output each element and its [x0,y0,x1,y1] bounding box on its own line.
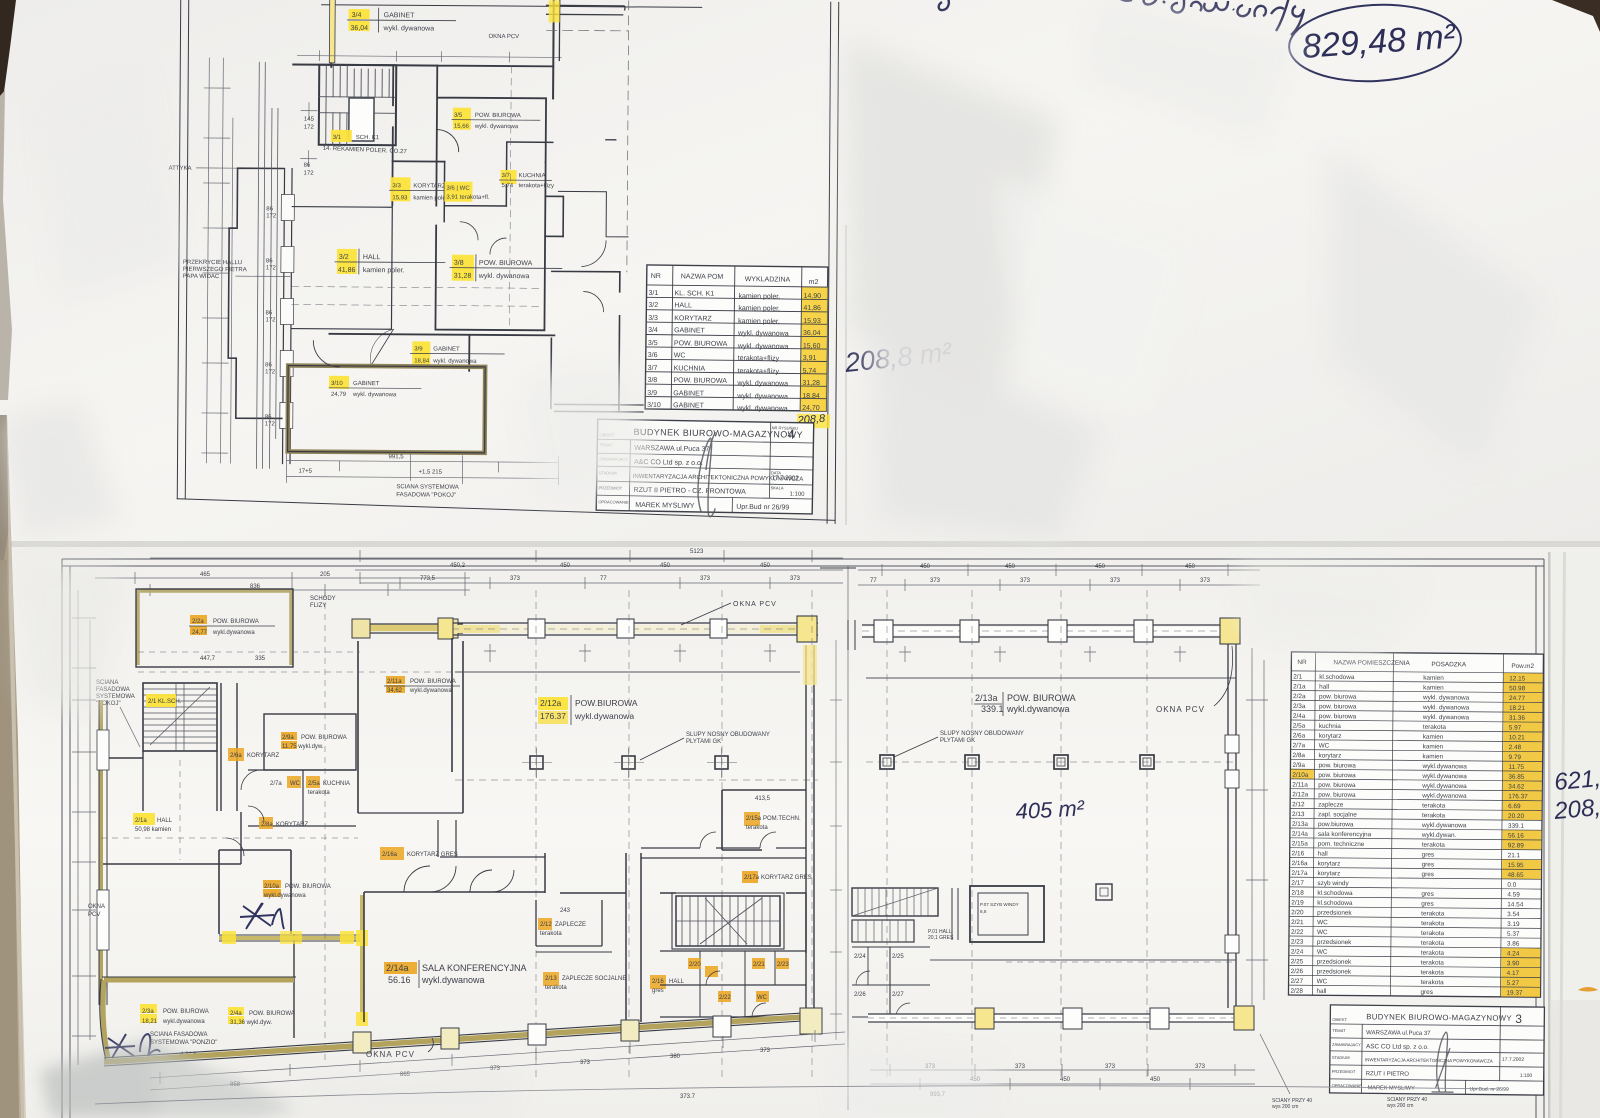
svg-text:POM.TECHN.: POM.TECHN. [763,816,801,822]
svg-text:405 m²: 405 m² [1015,795,1085,824]
svg-text:pow.biurowa: pow.biurowa [1318,821,1354,828]
svg-text:kamien poler.: kamien poler. [738,293,780,301]
svg-text:HALL: HALL [669,979,685,985]
svg-text:2/27: 2/27 [892,992,904,998]
svg-text:POW. BIUROWA: POW. BIUROWA [674,340,728,348]
svg-text:KORYTARZ: KORYTARZ [413,183,445,189]
svg-text:OKNA: OKNA [88,904,105,910]
svg-text:373: 373 [1200,578,1211,584]
svg-text:WC: WC [757,995,768,1001]
svg-text:3,91: 3,91 [803,355,817,362]
svg-text:3/5: 3/5 [648,340,658,347]
svg-text:2/12a: 2/12a [540,698,562,708]
svg-text:3/7: 3/7 [648,365,658,372]
svg-text:KL. SCH. K1: KL. SCH. K1 [674,290,714,297]
svg-text:243: 243 [560,908,571,914]
svg-text:2/26: 2/26 [854,992,866,998]
svg-text:FASADOWA "POKOJ": FASADOWA "POKOJ" [396,492,456,498]
svg-text:DATA: DATA [771,470,781,475]
svg-text:PCV: PCV [88,912,100,918]
svg-text:373: 373 [1195,1064,1206,1070]
svg-text:2/10a: 2/10a [1292,772,1308,779]
svg-text:kamien poler.: kamien poler. [738,305,780,313]
svg-text:380: 380 [670,1054,681,1060]
svg-text:terakota: terakota [1421,979,1445,986]
svg-text:ZAPLECZE: ZAPLECZE [555,922,586,928]
svg-text:2/19: 2/19 [1291,899,1304,906]
svg-text:205: 205 [320,572,331,578]
svg-text:36.85: 36.85 [1508,774,1524,781]
svg-text:POW. BIUROWA: POW. BIUROWA [410,679,456,685]
svg-text:szyb windy: szyb windy [1317,880,1349,887]
svg-text:3/9: 3/9 [647,390,657,397]
svg-text:kamien: kamien [1423,743,1444,750]
svg-text:92.89: 92.89 [1508,842,1524,849]
svg-text:2/21: 2/21 [1291,919,1304,926]
svg-text:PAPA WIDAC: PAPA WIDAC [183,274,220,280]
svg-text:86: 86 [266,258,273,264]
svg-text:PRZEDMIOT: PRZEDMIOT [1332,1069,1356,1074]
svg-text:4.59: 4.59 [1507,891,1520,898]
svg-text:MAREK MYSLIWY: MAREK MYSLIWY [635,502,695,510]
svg-text:2/5a: 2/5a [1293,723,1306,730]
svg-text:wykl.dywanowa: wykl.dywanowa [1421,822,1467,829]
svg-text:hall: hall [1319,684,1329,691]
svg-text:OKNA PCV: OKNA PCV [366,1050,415,1059]
svg-text:50,98 kamien: 50,98 kamien [135,827,171,833]
svg-text:terakota: terakota [1421,920,1445,927]
svg-text:2/11a: 2/11a [1292,782,1308,789]
svg-text:172: 172 [304,125,315,131]
svg-text:hall: hall [1318,851,1328,858]
svg-text:373: 373 [790,576,801,582]
svg-text:pow. biurowa: pow. biurowa [1319,693,1357,700]
svg-text:2/9a: 2/9a [1292,762,1305,769]
svg-text:24,70: 24,70 [802,405,820,412]
svg-text:3/10: 3/10 [647,402,661,409]
svg-text:2.48: 2.48 [1509,744,1522,751]
svg-text:2/1a: 2/1a [135,818,147,824]
svg-text:OKNA PCV: OKNA PCV [733,601,777,608]
svg-text:18,21: 18,21 [142,1019,158,1025]
svg-text:PLYTAMI GK: PLYTAMI GK [940,738,975,744]
svg-text:POW.BIUROWA: POW.BIUROWA [575,698,638,708]
svg-text:373: 373 [760,1048,771,1054]
svg-text:zapl. socjalne: zapl. socjalne [1318,811,1357,818]
svg-text:SCIANA SYSTEMOWA: SCIANA SYSTEMOWA [396,484,459,490]
svg-text:447,7: 447,7 [200,656,216,662]
svg-text:3.90: 3.90 [1507,960,1520,967]
svg-text:gres: gres [1421,871,1433,878]
svg-text:2/1: 2/1 [1293,674,1302,681]
svg-text:2/17a: 2/17a [1291,870,1307,877]
svg-text:P.07 SZYB WINDY: P.07 SZYB WINDY [980,902,1019,907]
svg-text:wykl. dywanowa: wykl. dywanowa [1422,714,1470,721]
svg-text:pow. biurowa: pow. biurowa [1318,762,1356,769]
svg-text:15.95: 15.95 [1508,862,1524,869]
svg-text:2/26: 2/26 [1291,968,1304,975]
svg-text:zaplecze: zaplecze [1318,801,1344,808]
svg-text:KORYTARZ: KORYTARZ [674,315,712,322]
svg-text:SCHODY: SCHODY [310,596,336,602]
svg-text:wykl. dywanowa: wykl. dywanowa [432,359,477,365]
svg-text:5,74: 5,74 [501,183,513,189]
svg-text:+1,5 215: +1,5 215 [418,469,442,475]
svg-text:2/6a: 2/6a [230,753,242,759]
svg-text:24.77: 24.77 [1509,695,1525,702]
svg-text:2/28: 2/28 [1290,988,1303,995]
svg-text:RZUT I PIETRO: RZUT I PIETRO [1366,1071,1410,1077]
svg-text:450: 450 [1060,1077,1071,1083]
svg-text:2/13a: 2/13a [1292,821,1308,828]
svg-text:373: 373 [700,576,711,582]
svg-text:korytarz: korytarz [1318,860,1341,867]
svg-text:GABINET: GABINET [433,347,460,353]
svg-text:17.7.2002: 17.7.2002 [772,475,799,481]
svg-text:wykl.dywanowa: wykl.dywanowa [1421,763,1467,770]
svg-text:24,79: 24,79 [331,392,347,398]
svg-text:HALL: HALL [363,254,381,261]
svg-text:50.98: 50.98 [1509,685,1525,692]
svg-text:450: 450 [1095,564,1106,570]
svg-text:4.17: 4.17 [1507,970,1520,977]
svg-text:kl.schodowa: kl.schodowa [1319,674,1355,681]
svg-text:wykl. dywanowa: wykl. dywanowa [736,405,788,413]
svg-text:24,77: 24,77 [192,630,208,636]
svg-text:3/7: 3/7 [501,173,510,179]
svg-text:NR: NR [1297,659,1307,666]
svg-text:KORYTARZ GRES: KORYTARZ GRES [407,852,458,858]
svg-text:KORYTARZ: KORYTARZ [247,753,279,759]
svg-text:373: 373 [1105,1064,1116,1070]
svg-text:2/17a: 2/17a [744,875,760,881]
svg-text:86: 86 [266,206,273,212]
svg-text:20.20: 20.20 [1508,813,1524,820]
svg-text:2/7a: 2/7a [1293,742,1306,749]
svg-text:2/12: 2/12 [1292,801,1305,808]
svg-text:3/8: 3/8 [647,377,657,384]
svg-text:ATTYKA: ATTYKA [169,166,192,172]
svg-text:48.65: 48.65 [1507,872,1523,879]
svg-text:pow. biurowa: pow. biurowa [1319,703,1357,710]
svg-text:kamien poler.: kamien poler. [738,318,780,326]
svg-text:15,93: 15,93 [392,195,408,201]
svg-text:przedsionek: przedsionek [1317,959,1352,966]
svg-text:PRZEKRYCIE HALLU: PRZEKRYCIE HALLU [183,260,242,266]
svg-text:77: 77 [870,578,877,584]
svg-text:2/15a: 2/15a [1292,840,1308,847]
svg-text:17.7.2002: 17.7.2002 [1502,1057,1525,1063]
svg-text:gres: gres [1422,851,1434,858]
svg-text:wys 200 cm: wys 200 cm [1272,1104,1298,1110]
svg-text:3/8: 3/8 [454,260,464,267]
svg-text:373: 373 [580,1060,591,1066]
svg-text:NAZWA POMIESZCZENIA: NAZWA POMIESZCZENIA [1333,659,1410,667]
svg-text:terakota: terakota [1422,802,1446,809]
svg-text:18,84: 18,84 [414,358,430,364]
svg-text:41,86: 41,86 [803,305,821,312]
svg-text:450: 450 [1185,564,1196,570]
svg-text:hall: hall [1316,988,1326,995]
svg-text:HALL: HALL [157,818,173,824]
svg-text:wykl.dywanowa: wykl.dywanowa [1421,792,1467,799]
svg-text:wykl. dywanowa: wykl. dywanowa [1422,694,1470,701]
svg-text:3/3: 3/3 [392,183,401,189]
svg-text:STADIUM: STADIUM [1332,1055,1350,1060]
svg-text:450: 450 [1005,564,1016,570]
svg-text:373: 373 [1015,1064,1026,1070]
svg-text:2/16a: 2/16a [382,852,398,858]
svg-text:ASC CO Ltd sp. z o.o.: ASC CO Ltd sp. z o.o. [1366,1043,1429,1051]
svg-text:wykl.dywanowa: wykl.dywanowa [409,688,452,694]
svg-text:176.37: 176.37 [540,711,566,721]
svg-text:991,5: 991,5 [389,454,405,460]
svg-text:5.97: 5.97 [1509,725,1522,732]
svg-text:PLYTAMI GK: PLYTAMI GK [686,739,721,745]
svg-text:POW. BIUROWA: POW. BIUROWA [479,260,533,267]
svg-text:86: 86 [265,362,272,368]
svg-text:WC: WC [1317,919,1328,926]
svg-text:wykl.dywanowa: wykl.dywanowa [162,1019,205,1025]
svg-text:15,66: 15,66 [454,124,470,130]
svg-text:FLIZY: FLIZY [310,603,326,609]
svg-text:wykl. dywanowa: wykl. dywanowa [383,25,435,32]
svg-text:terakota: terakota [1421,950,1445,957]
svg-text:WC: WC [290,781,301,787]
svg-text:wykl.dywanowa: wykl.dywanowa [421,975,485,985]
svg-text:335: 335 [255,656,266,662]
svg-text:korytarz: korytarz [1319,752,1342,759]
svg-text:2/14a: 2/14a [1292,831,1308,838]
svg-text:ZAMAWIAJACY: ZAMAWIAJACY [1332,1042,1361,1047]
svg-text:pom. techniczne: pom. techniczne [1318,841,1365,848]
svg-text:2/5a: 2/5a [308,781,320,787]
svg-text:2/23: 2/23 [777,962,789,968]
svg-text:3/4: 3/4 [352,12,362,19]
svg-text:15,60: 15,60 [803,343,821,350]
svg-text:GABINET: GABINET [673,402,705,409]
svg-text:36,04: 36,04 [351,25,369,32]
svg-text:8,8: 8,8 [980,909,987,914]
svg-text:2/3a: 2/3a [142,1009,154,1015]
svg-text:POW. BIUROWA: POW. BIUROWA [673,377,727,385]
svg-text:SLUPY NOSNY OBUDOWANY: SLUPY NOSNY OBUDOWANY [940,731,1024,737]
svg-text:OKNA PCV: OKNA PCV [488,34,519,40]
svg-text:2/1a: 2/1a [1293,683,1306,690]
svg-text:wykl.dywanowa: wykl.dywanowa [1421,773,1467,780]
svg-text:OBIEKT: OBIEKT [1332,1017,1347,1022]
svg-text:86: 86 [266,310,273,316]
svg-text:373.7: 373.7 [680,1094,696,1100]
svg-text:POW. BIUROWA: POW. BIUROWA [249,1011,295,1017]
svg-text:36,04: 36,04 [803,330,821,337]
svg-text:WC: WC [1317,978,1328,985]
svg-text:gres: gres [1422,861,1434,868]
svg-text:kl.schodowa: kl.schodowa [1317,890,1353,897]
svg-text:korytarz: korytarz [1317,870,1340,877]
svg-text:sala konferencyjna: sala konferencyjna [1318,831,1372,838]
svg-text:2/9a: 2/9a [282,735,294,741]
svg-text:kuchnia: kuchnia [1319,723,1342,730]
svg-text:pow. biurowa: pow. biurowa [1318,782,1356,789]
svg-text:POW. BIUROWA: POW. BIUROWA [163,1009,209,1015]
svg-text:2/27: 2/27 [1291,978,1304,985]
svg-text:172: 172 [304,171,315,177]
svg-text:2/25: 2/25 [1291,958,1304,965]
svg-text:wykl.dywanowa: wykl.dywanowa [263,893,306,899]
svg-text:145: 145 [304,117,315,123]
svg-text:2/24: 2/24 [854,954,866,960]
svg-text:terakota+flizy: terakota+flizy [518,183,554,189]
svg-text:2/17: 2/17 [1291,880,1304,887]
svg-text:Upr.Bud nr 26/99: Upr.Bud nr 26/99 [736,504,789,512]
svg-text:2/13a: 2/13a [975,693,998,703]
svg-text:terakota+flizy: terakota+flizy [738,368,780,376]
svg-text:450: 450 [1150,1077,1161,1083]
svg-text:m2: m2 [809,279,819,286]
svg-text:2/20: 2/20 [1291,909,1304,916]
svg-text:3/6 | WC: 3/6 | WC [446,186,470,192]
svg-text:GABINET: GABINET [673,390,705,397]
svg-text:3/2: 3/2 [339,254,349,261]
svg-text:31.36: 31.36 [1509,715,1525,722]
svg-text:413,5: 413,5 [755,796,771,802]
svg-text:2/4a: 2/4a [1293,713,1306,720]
svg-text:wykl. dywanowa: wykl. dywanowa [352,392,397,398]
svg-text:wykl. dywanowa: wykl. dywanowa [737,330,789,338]
svg-text:0.0: 0.0 [1507,882,1516,889]
svg-text:2/13: 2/13 [545,976,557,982]
svg-text:3,91 terakota+fl.: 3,91 terakota+fl. [446,195,490,201]
svg-text:Upr.Bud. nr 26/99: Upr.Bud. nr 26/99 [1470,1086,1509,1092]
svg-text:373: 373 [1020,578,1031,584]
svg-text:przedsionek: przedsionek [1317,939,1352,946]
svg-text:450: 450 [660,563,671,569]
svg-text:3.86: 3.86 [1507,940,1520,947]
svg-text:SCIANA FASADOWA: SCIANA FASADOWA [150,1032,207,1038]
svg-text:2/18: 2/18 [1291,890,1304,897]
svg-text:terakota: terakota [1422,812,1446,819]
svg-text:terakota: terakota [545,985,567,991]
svg-text:2/22: 2/22 [1291,929,1304,936]
svg-text:wykl.dywanowa: wykl.dywanowa [1421,783,1467,790]
svg-text:WC: WC [674,352,686,359]
svg-text:2/4a: 2/4a [230,1011,242,1017]
svg-text:12.15: 12.15 [1509,675,1525,682]
svg-text:2/13: 2/13 [1292,811,1305,818]
svg-text:WC: WC [1317,949,1328,956]
svg-text:5123: 5123 [690,549,704,555]
svg-text:wykl.dywanowa: wykl.dywanowa [574,711,634,721]
svg-text:373: 373 [1110,578,1121,584]
svg-text:2/15a: 2/15a [746,816,762,822]
svg-text:2/12: 2/12 [540,922,552,928]
svg-text:3/5: 3/5 [454,113,463,119]
svg-text:2/16: 2/16 [1292,850,1305,857]
svg-text:OKNA PCV: OKNA PCV [1156,705,1205,714]
svg-text:korytarz: korytarz [1319,733,1342,740]
svg-text:2/10a: 2/10a [264,884,280,890]
svg-text:wykl. dywanowa: wykl. dywanowa [474,124,519,130]
svg-text:Pow.m2: Pow.m2 [1511,663,1534,670]
svg-text:KORYTARZ GRES: KORYTARZ GRES [761,875,812,881]
svg-text:450: 450 [920,564,931,570]
svg-text:21.1: 21.1 [1508,852,1521,859]
svg-text:3.54: 3.54 [1507,911,1520,918]
svg-text:terakota: terakota [1423,724,1447,731]
svg-text:56.16: 56.16 [388,975,411,985]
svg-text:3/2: 3/2 [648,302,658,309]
svg-text:terakota: terakota [1421,910,1445,917]
svg-text:3: 3 [1515,1012,1522,1026]
svg-text:KUCHNIA: KUCHNIA [323,781,350,787]
svg-text:31,36 wykl.dyw.: 31,36 wykl.dyw. [230,1020,272,1026]
svg-text:2/20: 2/20 [689,962,701,968]
svg-text:14.54: 14.54 [1507,901,1523,908]
svg-text:56.16: 56.16 [1508,833,1524,840]
svg-text:PIERWSZEGO PIETRA: PIERWSZEGO PIETRA [183,267,247,273]
svg-text:2/25: 2/25 [892,954,904,960]
svg-text:2/2a: 2/2a [1293,693,1306,700]
svg-text:GABINET: GABINET [353,381,380,387]
svg-text:86: 86 [265,414,272,420]
svg-text:11.75: 11.75 [1508,764,1524,771]
svg-text:11,75 wykl.dyw.: 11,75 wykl.dyw. [282,744,324,750]
svg-text:86: 86 [304,163,311,169]
svg-text:5,74: 5,74 [803,368,817,375]
svg-text:POW. BIUROWA: POW. BIUROWA [213,619,259,625]
svg-text:34,62: 34,62 [387,688,403,694]
svg-text:POSADZKA: POSADZKA [1431,661,1467,668]
svg-text:wykl.dywan.: wykl.dywan. [1421,832,1457,839]
svg-text:wykl. dywanowa: wykl. dywanowa [736,380,788,388]
svg-text:terakota: terakota [1421,959,1445,966]
svg-text:2/23: 2/23 [1291,939,1304,946]
svg-text:176.37: 176.37 [1508,793,1528,800]
svg-text:3/4: 3/4 [648,327,658,334]
svg-text:77: 77 [600,576,607,582]
svg-text:KUCHNIA: KUCHNIA [674,365,706,372]
svg-text:3/1: 3/1 [333,135,342,141]
svg-text:gres: gres [652,988,664,994]
svg-text:31,28: 31,28 [454,273,472,280]
svg-text:773,5: 773,5 [420,576,436,582]
svg-text:1:100: 1:100 [789,492,805,498]
svg-text:ZAPLECZE SOCJALNE: ZAPLECZE SOCJALNE [562,976,626,982]
svg-text:3/9: 3/9 [414,346,423,352]
svg-text:3/6: 3/6 [648,352,658,359]
svg-text:2/21: 2/21 [753,962,765,968]
svg-text:SLUPY NOSNY OBUDOWANY: SLUPY NOSNY OBUDOWANY [686,732,770,738]
svg-text:2/8a: 2/8a [261,822,273,828]
svg-text:NAZWA POM: NAZWA POM [681,273,724,281]
svg-text:przedsionek: przedsionek [1317,909,1352,916]
svg-text:kamien: kamien [1423,684,1444,691]
svg-text:450: 450 [560,563,571,569]
svg-text:31,28: 31,28 [802,380,820,387]
svg-text:2/11a: 2/11a [387,679,402,685]
svg-text:POW. BIUROWA: POW. BIUROWA [1007,693,1076,703]
svg-text:41,86: 41,86 [338,267,356,274]
svg-text:2/22: 2/22 [719,995,731,1001]
svg-text:3/1: 3/1 [648,290,658,297]
svg-text:WYKLADZINA: WYKLADZINA [745,276,791,284]
svg-text:NR RYSUNKU: NR RYSUNKU [772,425,799,430]
svg-text:14,90: 14,90 [803,293,821,300]
svg-text:terakota: terakota [1422,842,1446,849]
svg-text:2/16: 2/16 [652,979,664,985]
svg-text:10.21: 10.21 [1509,734,1525,741]
